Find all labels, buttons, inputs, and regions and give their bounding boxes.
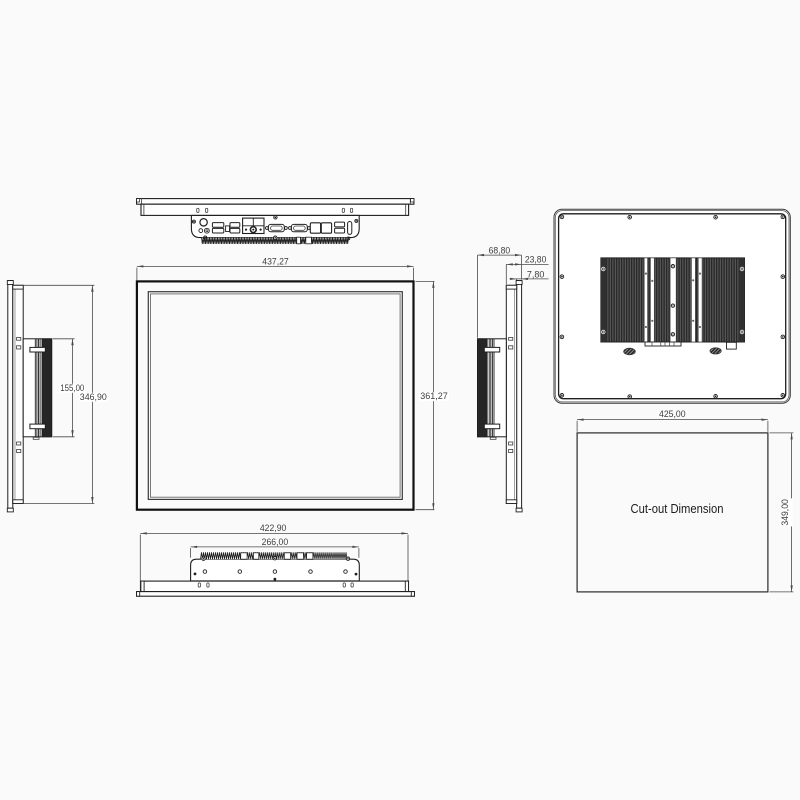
svg-text:68,80: 68,80	[489, 246, 511, 256]
svg-text:Cut-out Dimension: Cut-out Dimension	[631, 501, 724, 516]
svg-text:266,00: 266,00	[262, 537, 289, 547]
svg-text:23,80: 23,80	[525, 255, 547, 265]
svg-text:422,90: 422,90	[260, 523, 287, 533]
svg-text:437,27: 437,27	[262, 256, 289, 266]
svg-text:349,00: 349,00	[780, 499, 790, 526]
svg-text:7,80: 7,80	[527, 269, 545, 279]
svg-text:425,00: 425,00	[659, 409, 686, 419]
svg-text:346,90: 346,90	[80, 392, 107, 402]
svg-text:361,27: 361,27	[420, 391, 448, 401]
